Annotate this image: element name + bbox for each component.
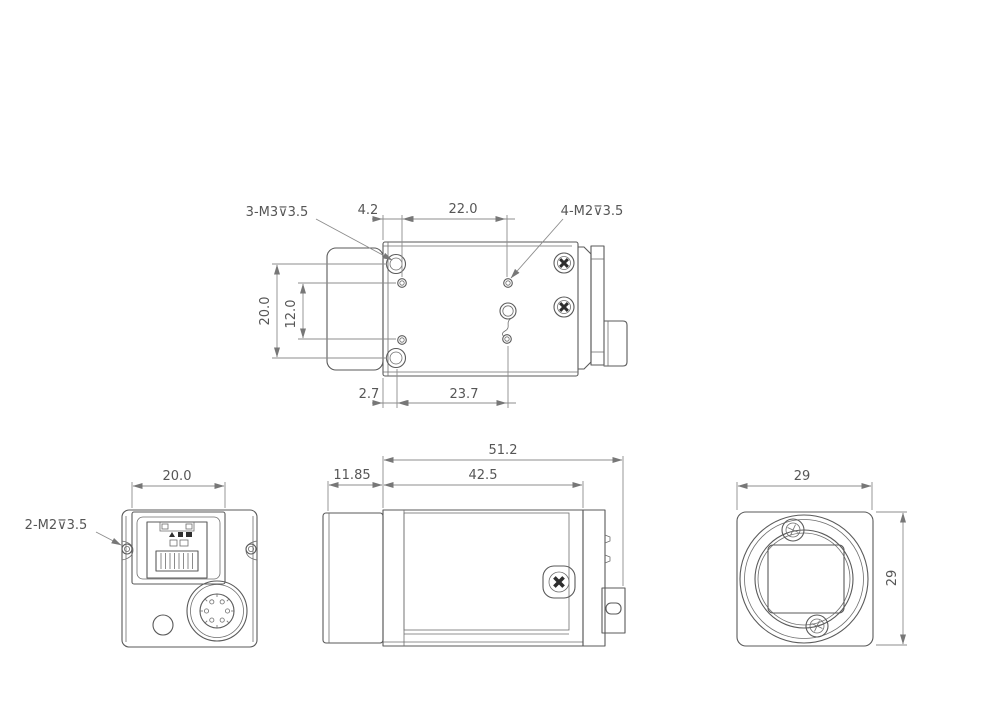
- top-m2-hole-col3-upper: [504, 279, 513, 288]
- drawing-canvas: 4.2 22.0 3-M3⊽3.5 4-M2⊽3.5 20.0 12.0: [0, 0, 1000, 707]
- top-lens-barrel: [327, 248, 383, 370]
- top-m2-hole-col2-lower: [398, 336, 407, 345]
- leader-2-m2: [96, 532, 121, 545]
- circular-io-connector: [187, 581, 247, 641]
- side-body-outline: [383, 510, 583, 646]
- side-io-slot: [606, 603, 621, 614]
- front-view: 29 29: [737, 469, 907, 646]
- dim-2-7: 2.7: [359, 387, 380, 402]
- top-rear-chamfer-plate: [578, 247, 591, 369]
- dim-20-0-top: 20.0: [258, 297, 273, 326]
- back-view-dimensions: 20.0 2-M2⊽3.5: [25, 469, 225, 545]
- label-3-m3: 3-M3⊽3.5: [246, 205, 309, 220]
- top-body-outline: [383, 242, 578, 376]
- rj45-connector: [147, 522, 207, 578]
- front-screw-bottom: [806, 615, 828, 637]
- lens-mount-ring: [740, 515, 868, 643]
- label-2-m2: 2-M2⊽3.5: [25, 518, 88, 533]
- side-lens-barrel: [323, 513, 383, 643]
- side-rear-tab-1: [605, 535, 610, 543]
- camera-dimensional-drawing: 4.2 22.0 3-M3⊽3.5 4-M2⊽3.5 20.0 12.0: [0, 0, 1000, 707]
- top-rear-block: [591, 246, 604, 365]
- dim-4-2: 4.2: [358, 203, 379, 218]
- back-view: 20.0 2-M2⊽3.5: [25, 469, 257, 647]
- rj45-recess-outer: [132, 512, 225, 584]
- top-rear-screw-upper: [554, 253, 574, 273]
- dim-12-0: 12.0: [284, 300, 299, 329]
- connector-pins: [204, 600, 229, 622]
- back-right-m2-hole: [246, 541, 257, 560]
- top-m3-hole-upper: [387, 255, 406, 274]
- top-break-squiggle: [502, 318, 512, 336]
- sensor-window: [768, 545, 844, 613]
- top-rear-screw-lower: [554, 297, 574, 317]
- leader-4-m2: [511, 219, 563, 278]
- connector-index-ticks: [200, 594, 234, 628]
- dim-11-85: 11.85: [333, 468, 370, 483]
- top-m2-hole-col2-upper: [398, 279, 407, 288]
- side-rear-tab-2: [605, 555, 610, 563]
- dim-29-width: 29: [794, 469, 811, 484]
- front-view-dimensions: 29 29: [737, 469, 907, 645]
- top-m2-hole-col3-lower: [503, 335, 512, 344]
- dim-20-0-back: 20.0: [163, 469, 192, 484]
- label-4-m2: 4-M2⊽3.5: [561, 204, 624, 219]
- side-cover-screw: [543, 566, 575, 598]
- top-view: 4.2 22.0 3-M3⊽3.5 4-M2⊽3.5 20.0 12.0: [246, 202, 627, 408]
- status-led-window: [153, 615, 173, 635]
- dim-42-5: 42.5: [469, 468, 498, 483]
- dim-22-0: 22.0: [449, 202, 478, 217]
- rj45-pin-comb: [156, 551, 198, 571]
- top-io-connector: [604, 321, 627, 366]
- dim-51-2: 51.2: [489, 443, 518, 458]
- dim-29-height: 29: [885, 570, 900, 587]
- side-view-dimensions: 51.2 11.85 42.5: [328, 443, 623, 586]
- back-left-m2-hole: [122, 541, 133, 560]
- rj45-recess-inner: [137, 517, 220, 579]
- dim-23-7: 23.7: [450, 387, 479, 402]
- rj45-led-marks: [169, 532, 192, 546]
- top-center-hole: [500, 303, 516, 319]
- top-m3-hole-lower: [387, 349, 406, 368]
- side-view: 51.2 11.85 42.5: [323, 443, 625, 646]
- rj45-latch-tab: [160, 522, 194, 531]
